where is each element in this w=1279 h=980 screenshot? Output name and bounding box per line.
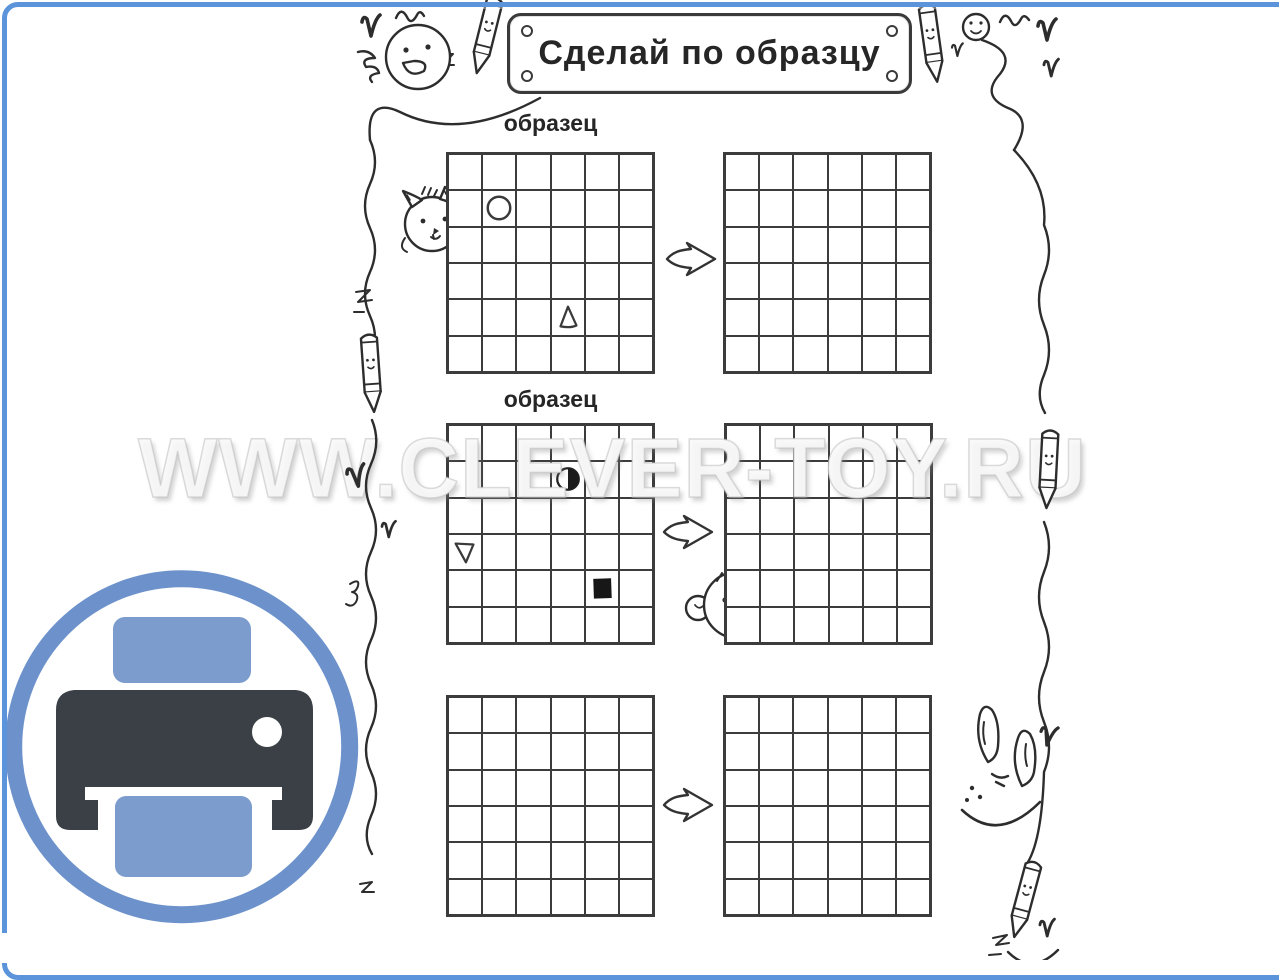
grid-cell xyxy=(482,770,516,806)
grid-cell xyxy=(551,190,585,226)
grid-cell xyxy=(726,534,760,570)
grid-cell xyxy=(896,227,930,263)
smiley-icon xyxy=(386,25,450,89)
grid-cell xyxy=(482,299,516,335)
grid-cell xyxy=(619,733,653,769)
print-icon[interactable] xyxy=(0,556,372,928)
sample-grid-2 xyxy=(446,423,655,645)
grid-cell xyxy=(760,534,794,570)
grid-cell xyxy=(619,842,653,878)
grid-cell xyxy=(862,154,896,190)
grid-cell xyxy=(862,336,896,372)
grid-cell xyxy=(759,190,793,226)
grid-cell xyxy=(896,697,930,733)
square-filled xyxy=(587,573,617,603)
grid-cell xyxy=(829,425,863,461)
grid-cell xyxy=(619,336,653,372)
grid-cell xyxy=(725,336,759,372)
grid-cell xyxy=(516,733,550,769)
grid-cell xyxy=(551,697,585,733)
grid-cell xyxy=(448,607,482,643)
grid-cell xyxy=(619,154,653,190)
grid-cell xyxy=(516,336,550,372)
grid-cell xyxy=(828,733,862,769)
grid-cell xyxy=(794,461,828,497)
grid-cell xyxy=(793,842,827,878)
grid-cell xyxy=(551,607,585,643)
grid-cell xyxy=(482,498,516,534)
screw-icon xyxy=(521,25,533,37)
grid-cell xyxy=(585,842,619,878)
grid-cell xyxy=(482,607,516,643)
pencil-icon xyxy=(361,334,382,412)
grid-cell xyxy=(585,570,619,606)
grid-cell xyxy=(793,806,827,842)
grid-cell xyxy=(759,806,793,842)
grid-cell xyxy=(896,879,930,915)
grid-cell xyxy=(448,227,482,263)
heart-icon xyxy=(362,15,380,36)
grid-cell xyxy=(829,607,863,643)
grid-cell xyxy=(726,425,760,461)
grid-cell xyxy=(725,154,759,190)
grid-cell xyxy=(585,263,619,299)
grid-cell xyxy=(619,263,653,299)
grid-cell xyxy=(619,227,653,263)
grid-cell xyxy=(619,570,653,606)
grid-cell xyxy=(516,806,550,842)
grid-cell xyxy=(448,770,482,806)
grid-cell xyxy=(482,570,516,606)
triangle-down-outline xyxy=(450,537,480,567)
grid-cell xyxy=(585,190,619,226)
rabbit-icon xyxy=(962,707,1040,825)
squiggle-doodle xyxy=(358,12,454,82)
grid-cell xyxy=(862,190,896,226)
grid-cell xyxy=(794,607,828,643)
grid-cell xyxy=(759,842,793,878)
grid-cell xyxy=(760,425,794,461)
grid-cell xyxy=(551,336,585,372)
smiley-icon xyxy=(963,14,989,40)
grid-cell xyxy=(482,842,516,878)
grid-cell xyxy=(862,806,896,842)
grid-cell xyxy=(897,498,931,534)
grid-cell xyxy=(896,190,930,226)
grid-cell xyxy=(828,154,862,190)
grid-cell xyxy=(516,607,550,643)
grid-cell xyxy=(897,461,931,497)
grid-cell xyxy=(759,263,793,299)
grid-cell xyxy=(759,154,793,190)
grid-cell xyxy=(482,697,516,733)
grid-cell xyxy=(896,299,930,335)
grid-cell xyxy=(829,570,863,606)
grid-cell xyxy=(828,842,862,878)
pencil-icon xyxy=(1038,430,1058,508)
grid-cell xyxy=(448,461,482,497)
grid-cell xyxy=(760,607,794,643)
arrow-right-icon xyxy=(660,786,716,824)
grid-cell xyxy=(551,770,585,806)
grid-cell xyxy=(862,770,896,806)
heart-icon xyxy=(382,521,396,537)
sample-grid-1 xyxy=(446,152,655,374)
grid-cell xyxy=(585,770,619,806)
grid-cell xyxy=(793,154,827,190)
grid-cell xyxy=(585,425,619,461)
grid-cell xyxy=(585,607,619,643)
grid-cell xyxy=(551,227,585,263)
grid-cell xyxy=(726,607,760,643)
grid-cell xyxy=(585,806,619,842)
grid-cell xyxy=(759,336,793,372)
grid-cell xyxy=(585,733,619,769)
grid-cell xyxy=(551,879,585,915)
grid-cell xyxy=(828,263,862,299)
grid-cell xyxy=(448,570,482,606)
screw-icon xyxy=(521,70,533,82)
grid-cell xyxy=(793,263,827,299)
grid-cell xyxy=(828,190,862,226)
grid-cell xyxy=(516,534,550,570)
grid-cell xyxy=(759,299,793,335)
pencil-icon xyxy=(1007,860,1043,939)
squiggle-doodle xyxy=(1000,16,1029,25)
grid-cell xyxy=(828,299,862,335)
heart-icon xyxy=(346,464,367,488)
circle-outline xyxy=(484,193,514,223)
grid-cell xyxy=(863,570,897,606)
screw-icon xyxy=(886,25,898,37)
grid-cell xyxy=(448,733,482,769)
grid-cell xyxy=(759,697,793,733)
grid-cell xyxy=(619,461,653,497)
grid-cell xyxy=(897,425,931,461)
grid-cell xyxy=(828,879,862,915)
grid-cell xyxy=(828,806,862,842)
grid-cell xyxy=(619,498,653,534)
grid-cell xyxy=(448,190,482,226)
grid-cell xyxy=(516,425,550,461)
grid-cell xyxy=(551,534,585,570)
grid-cell xyxy=(585,879,619,915)
grid-cell xyxy=(829,461,863,497)
grid-cell xyxy=(516,498,550,534)
grid-cell xyxy=(862,263,896,299)
grid-cell xyxy=(862,697,896,733)
grid-cell xyxy=(725,770,759,806)
grid-cell xyxy=(551,842,585,878)
grid-cell xyxy=(482,154,516,190)
grid-cell xyxy=(863,607,897,643)
grid-cell xyxy=(828,336,862,372)
grid-cell xyxy=(896,154,930,190)
grid-cell xyxy=(863,534,897,570)
grid-cell xyxy=(516,461,550,497)
grid-cell xyxy=(516,227,550,263)
grid-cell xyxy=(862,299,896,335)
grid-cell xyxy=(862,842,896,878)
grid-cell xyxy=(551,733,585,769)
grid-cell xyxy=(794,425,828,461)
arrow-right-icon xyxy=(663,240,719,278)
grid-cell xyxy=(585,534,619,570)
grid-cell xyxy=(551,461,585,497)
grid-cell xyxy=(725,806,759,842)
grid-cell xyxy=(760,498,794,534)
grid-cell xyxy=(516,570,550,606)
grid-cell xyxy=(619,879,653,915)
grid-cell xyxy=(759,227,793,263)
grid-cell xyxy=(482,534,516,570)
grid-cell xyxy=(516,697,550,733)
grid-cell xyxy=(551,263,585,299)
grid-cell xyxy=(619,190,653,226)
grid-cell xyxy=(551,299,585,335)
grid-cell xyxy=(482,806,516,842)
grid-cell xyxy=(585,498,619,534)
grid-cell xyxy=(619,299,653,335)
grid-cell xyxy=(897,570,931,606)
grid-cell xyxy=(725,697,759,733)
grid-cell xyxy=(897,534,931,570)
grid-cell xyxy=(585,461,619,497)
grid-cell xyxy=(619,607,653,643)
grid-cell xyxy=(551,806,585,842)
grid-cell xyxy=(516,879,550,915)
grid-cell xyxy=(482,263,516,299)
grid-cell xyxy=(896,263,930,299)
grid-cell xyxy=(793,190,827,226)
grid-cell xyxy=(482,733,516,769)
grid-cell xyxy=(448,806,482,842)
grid-cell xyxy=(725,842,759,878)
grid-cell xyxy=(726,570,760,606)
circle-half-filled xyxy=(553,464,583,494)
grid-cell xyxy=(516,299,550,335)
title-banner: Сделай по образцу xyxy=(507,13,912,94)
pencil-icon xyxy=(469,0,503,75)
grid-cell xyxy=(619,425,653,461)
grid-cell xyxy=(585,697,619,733)
grid-cell xyxy=(448,336,482,372)
grid-cell xyxy=(793,733,827,769)
answer-grid-2 xyxy=(724,423,933,645)
grid-cell xyxy=(896,733,930,769)
grid-cell xyxy=(726,498,760,534)
grid-cell xyxy=(448,879,482,915)
grid-cell xyxy=(794,570,828,606)
grid-cell xyxy=(759,733,793,769)
screw-icon xyxy=(886,70,898,82)
grid-cell xyxy=(448,534,482,570)
grid-cell xyxy=(760,570,794,606)
grid-cell xyxy=(619,697,653,733)
grid-cell xyxy=(793,770,827,806)
grid-cell xyxy=(862,227,896,263)
grid-cell xyxy=(725,227,759,263)
grid-cell xyxy=(828,697,862,733)
grid-cell xyxy=(896,336,930,372)
heart-icon xyxy=(1039,725,1058,746)
grid-cell xyxy=(448,842,482,878)
grid-cell xyxy=(862,733,896,769)
heart-icon xyxy=(1040,919,1054,936)
heart-icon xyxy=(1044,59,1058,76)
grid-cell xyxy=(585,299,619,335)
grid-cell xyxy=(725,733,759,769)
grid-cell xyxy=(516,154,550,190)
grid-cell xyxy=(828,227,862,263)
heart-icon xyxy=(1038,19,1056,40)
grid-cell xyxy=(619,534,653,570)
grid-cell xyxy=(896,770,930,806)
grid-cell xyxy=(482,879,516,915)
grid-cell xyxy=(793,336,827,372)
grid-cell xyxy=(619,770,653,806)
grid-cell xyxy=(793,697,827,733)
grid-cell xyxy=(516,263,550,299)
grid-cell xyxy=(448,425,482,461)
sample-grid-3 xyxy=(446,695,655,917)
grid-cell xyxy=(863,498,897,534)
grid-cell xyxy=(828,770,862,806)
grid-cell xyxy=(793,879,827,915)
grid-cell xyxy=(896,842,930,878)
grid-cell xyxy=(482,461,516,497)
grid-cell xyxy=(725,190,759,226)
scribble-doodle xyxy=(989,935,1009,955)
grid-cell xyxy=(448,263,482,299)
grid-cell xyxy=(516,842,550,878)
grid-cell xyxy=(482,190,516,226)
sample-label-2: образец xyxy=(446,386,655,413)
grid-cell xyxy=(585,336,619,372)
answer-grid-3 xyxy=(723,695,932,917)
grid-cell xyxy=(725,879,759,915)
grid-cell xyxy=(793,227,827,263)
grid-cell xyxy=(759,770,793,806)
grid-cell xyxy=(585,154,619,190)
answer-grid-1 xyxy=(723,152,932,374)
wavy-line-right xyxy=(982,40,1058,960)
grid-cell xyxy=(897,607,931,643)
card-frame-end xyxy=(0,933,10,963)
grid-cell xyxy=(619,806,653,842)
page-title: Сделай по образцу xyxy=(538,34,880,73)
grid-cell xyxy=(516,190,550,226)
grid-cell xyxy=(829,534,863,570)
grid-cell xyxy=(862,879,896,915)
grid-cell xyxy=(448,697,482,733)
grid-cell xyxy=(760,461,794,497)
grid-cell xyxy=(829,498,863,534)
sample-label-1: образец xyxy=(446,110,655,137)
triangle-up-outline xyxy=(553,302,583,332)
grid-cell xyxy=(551,425,585,461)
grid-cell xyxy=(725,263,759,299)
grid-cell xyxy=(794,534,828,570)
grid-cell xyxy=(759,879,793,915)
grid-cell xyxy=(516,770,550,806)
grid-cell xyxy=(896,806,930,842)
grid-cell xyxy=(448,498,482,534)
grid-cell xyxy=(448,299,482,335)
grid-cell xyxy=(793,299,827,335)
grid-cell xyxy=(585,227,619,263)
grid-cell xyxy=(448,154,482,190)
grid-cell xyxy=(482,227,516,263)
grid-cell xyxy=(794,498,828,534)
arrow-right-icon xyxy=(660,513,716,551)
grid-cell xyxy=(482,336,516,372)
grid-cell xyxy=(725,299,759,335)
grid-cell xyxy=(551,154,585,190)
grid-cell xyxy=(551,570,585,606)
grid-cell xyxy=(863,461,897,497)
grid-cell xyxy=(863,425,897,461)
grid-cell xyxy=(551,498,585,534)
heart-icon xyxy=(952,43,963,56)
pencil-icon xyxy=(918,4,945,83)
grid-cell xyxy=(482,425,516,461)
grid-cell xyxy=(726,461,760,497)
